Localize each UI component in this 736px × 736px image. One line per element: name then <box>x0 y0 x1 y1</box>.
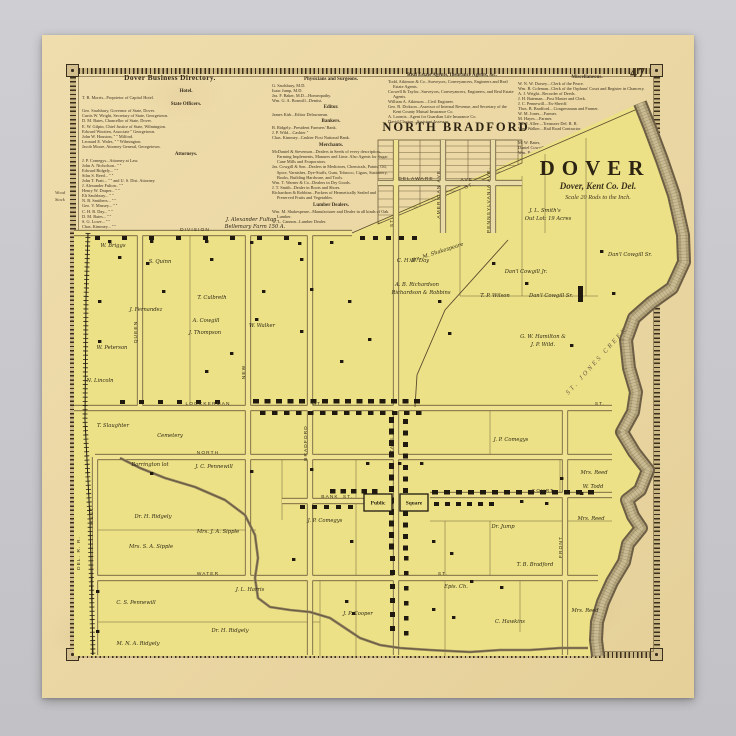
building <box>403 454 408 459</box>
building <box>468 490 474 495</box>
street-label: STATE <box>389 437 395 457</box>
house <box>500 586 503 589</box>
building <box>389 463 394 469</box>
building <box>403 442 408 447</box>
street-label: NEW <box>241 365 247 380</box>
owner-label: C. S. Pennewill <box>116 600 156 606</box>
page-number: 47 <box>630 66 646 82</box>
building <box>351 489 357 494</box>
house <box>366 462 369 465</box>
building <box>122 236 127 240</box>
building <box>403 431 408 436</box>
owner-label: Barrington lot <box>130 462 169 468</box>
building <box>404 586 409 591</box>
street-label: DEL. R. R. <box>76 536 82 570</box>
margin-note: Stock <box>55 197 65 202</box>
house <box>525 282 528 285</box>
building <box>404 411 410 415</box>
building <box>284 236 289 240</box>
building <box>445 502 450 506</box>
owner-label: Dan'l Cowgill Sr. <box>528 293 573 299</box>
owner-label: Dan'l Cowgill Jr. <box>504 269 548 275</box>
street-label: ST. <box>313 401 323 407</box>
house <box>300 258 303 261</box>
building <box>434 502 439 506</box>
owner-label: Bellemary Farm 150 A. <box>224 224 286 230</box>
house <box>545 502 548 505</box>
building <box>391 399 397 404</box>
street-label: COURT <box>532 488 554 494</box>
house <box>205 370 208 373</box>
building <box>257 236 262 240</box>
building <box>389 486 394 492</box>
house <box>118 256 121 259</box>
owner-label: S. Quinn <box>149 259 172 265</box>
house <box>150 240 153 243</box>
owner-label: J. Fernandez <box>129 307 163 313</box>
owner-label: T. Slaughter <box>97 423 129 429</box>
building <box>360 236 365 240</box>
street-label: ST. <box>343 494 353 500</box>
product-backdrop: Dover Business Directory. Hotel.T. B. Mo… <box>0 0 736 736</box>
public-square-label: Public <box>371 501 386 507</box>
owner-label: Mrs. Reed <box>570 608 599 614</box>
street-label: DIVISION <box>180 227 210 233</box>
street-label: DELAWARE <box>398 176 433 182</box>
owner-label: Mrs. J. A. Sipple <box>196 529 239 535</box>
building <box>588 490 594 495</box>
house <box>98 300 101 303</box>
owner-label: Richardson & Robbins <box>390 290 450 296</box>
building <box>390 598 395 603</box>
house <box>450 552 453 555</box>
building <box>158 400 163 404</box>
building <box>276 399 282 404</box>
owner-label: A. B. Richardson <box>394 282 439 288</box>
street-label: BRADFORD <box>303 425 309 461</box>
street-label: PENNSYLVANIA AVE. <box>486 167 492 233</box>
owner-label: J. C. Pennewill <box>194 464 233 470</box>
house <box>452 616 455 619</box>
owner-label: A. Cowgill <box>192 318 220 324</box>
building <box>177 400 182 404</box>
building <box>324 505 329 509</box>
owner-label: W. Peterson <box>97 345 128 351</box>
margin-note: Wood <box>55 190 65 195</box>
owner-label: J. P. Wild. <box>530 342 556 348</box>
owner-label: W. Todd <box>583 484 604 490</box>
building <box>403 546 408 551</box>
street-label: ST. <box>438 571 448 577</box>
building <box>312 505 317 509</box>
house <box>345 600 348 603</box>
building <box>380 399 386 404</box>
building <box>389 544 394 550</box>
building <box>320 411 326 415</box>
street-label: WATER <box>197 571 219 577</box>
house <box>250 470 253 473</box>
house <box>298 242 301 245</box>
owner-label: J. L. Smith's <box>528 208 561 214</box>
building <box>272 411 278 415</box>
house <box>398 462 401 465</box>
map-title: DOVER <box>500 156 690 181</box>
building <box>399 236 404 240</box>
building <box>392 411 398 415</box>
owner-label: C. H. B. Day <box>397 258 429 264</box>
house <box>98 340 101 343</box>
owner-label: J. Thompson <box>188 330 221 336</box>
owner-label: M. N. A. Ridgely <box>115 641 159 647</box>
building <box>390 584 395 589</box>
house <box>230 352 233 355</box>
street-label: ST. <box>389 217 395 227</box>
owner-label: Dan'l Cowgill Sr. <box>607 252 652 258</box>
building <box>372 489 378 494</box>
building <box>345 399 351 404</box>
public-square-label: Square <box>406 501 423 507</box>
house <box>438 300 441 303</box>
building <box>432 490 438 495</box>
building <box>564 490 570 495</box>
building <box>253 399 259 404</box>
building <box>308 411 314 415</box>
building <box>480 490 486 495</box>
house <box>368 338 371 341</box>
street-label: QUEEN <box>133 321 139 344</box>
building <box>95 236 100 240</box>
building <box>403 399 409 404</box>
house <box>255 318 258 321</box>
building <box>404 556 409 561</box>
building <box>456 502 461 506</box>
building <box>390 556 395 561</box>
house <box>560 477 563 480</box>
building <box>336 505 341 509</box>
building <box>389 417 394 423</box>
owner-label: N. Lincoln <box>86 378 114 384</box>
building <box>380 411 386 415</box>
house <box>250 241 253 244</box>
district-title: NORTH BRADFORD <box>370 120 542 135</box>
house <box>432 540 435 543</box>
house <box>580 492 583 495</box>
building <box>467 502 472 506</box>
building <box>478 502 483 506</box>
owner-label: Out Lot: 19 Acres <box>525 216 572 222</box>
building <box>373 236 378 240</box>
house <box>470 580 473 583</box>
building <box>416 411 422 415</box>
building <box>404 631 409 636</box>
building <box>489 502 494 506</box>
building <box>176 236 181 240</box>
owner-label: Epis. Ch. <box>443 584 468 590</box>
house <box>205 240 208 243</box>
building <box>444 490 450 495</box>
building <box>368 399 374 404</box>
building <box>284 411 290 415</box>
street-label: NORTH <box>197 450 219 456</box>
house <box>96 630 99 633</box>
building <box>230 236 235 240</box>
house <box>96 590 99 593</box>
street-label: LOOCKERMAN <box>185 401 230 407</box>
house <box>310 288 313 291</box>
building <box>386 236 391 240</box>
building <box>403 419 408 424</box>
house <box>432 608 435 611</box>
building <box>403 534 408 539</box>
building <box>120 400 125 404</box>
building <box>348 505 353 509</box>
building <box>299 399 305 404</box>
house <box>600 250 603 253</box>
owner-label: Dr. H. Ridgely <box>133 514 171 520</box>
owner-label: Dr. H. Ridgely <box>210 628 248 634</box>
map-scale-note: Scale 20 Rods to the Inch. <box>508 194 688 201</box>
dover-town-map: PublicSquareDIVISIONST.LOOCKERMANST.ST.N… <box>0 0 736 736</box>
owner-label: W. Walker <box>249 323 276 329</box>
building <box>334 399 340 404</box>
street-label: ST. <box>595 401 605 407</box>
street-label: AMERICAN AVE. <box>436 167 442 218</box>
owner-label: Mrs. S. A. Sipple <box>128 544 173 550</box>
building <box>296 411 302 415</box>
building <box>356 411 362 415</box>
owner-label: T. P. Wilson <box>480 293 509 299</box>
building <box>389 429 394 435</box>
house <box>210 258 213 261</box>
building <box>403 511 408 516</box>
building <box>288 399 294 404</box>
building <box>139 400 144 404</box>
owner-label: J. P. Cooper <box>342 611 373 617</box>
building <box>300 505 305 509</box>
building <box>403 477 408 482</box>
building <box>389 521 394 527</box>
building <box>404 616 409 621</box>
house <box>340 360 343 363</box>
building <box>403 488 408 493</box>
building <box>404 571 409 576</box>
building <box>516 490 522 495</box>
owner-label: Cemetery <box>157 433 183 439</box>
building <box>504 490 510 495</box>
street-label: BANK <box>321 494 338 500</box>
owner-label: C. Hawkins <box>495 619 525 625</box>
building <box>403 465 408 470</box>
house <box>448 332 451 335</box>
owner-label: Mrs. Reed <box>579 470 608 476</box>
house <box>310 468 313 471</box>
building <box>412 236 417 240</box>
street-label: FRONT <box>558 536 564 558</box>
house <box>300 330 303 333</box>
building <box>456 490 462 495</box>
owner-label: T. B. Bradford <box>517 562 554 568</box>
owner-label: Dr. Jump <box>490 524 515 530</box>
owner-label: Mrs. Reed <box>576 516 605 522</box>
house <box>420 462 423 465</box>
owner-label: G. W. Hamilton & <box>520 334 566 340</box>
owner-label: J. Alexander Fulton. <box>225 217 278 223</box>
house <box>612 292 615 295</box>
building <box>390 612 395 617</box>
street-label: WEST <box>89 507 95 525</box>
house <box>150 472 153 475</box>
house <box>520 500 523 503</box>
owner-label: W. Briggs <box>101 243 126 249</box>
building <box>389 475 394 481</box>
building <box>390 626 395 631</box>
house <box>492 262 495 265</box>
building <box>390 570 395 575</box>
building <box>341 489 347 494</box>
building <box>260 411 266 415</box>
owner-label: J. P. Comegys <box>307 518 343 524</box>
building <box>578 286 583 302</box>
street-label: AVE. <box>461 177 476 183</box>
house <box>570 344 573 347</box>
building <box>404 601 409 606</box>
building <box>149 236 154 240</box>
map-subtitle: Dover, Kent Co. Del. <box>508 181 688 191</box>
building <box>344 411 350 415</box>
building <box>389 532 394 538</box>
building <box>492 490 498 495</box>
house <box>348 300 351 303</box>
building <box>362 489 368 494</box>
house <box>162 290 165 293</box>
building <box>330 489 336 494</box>
house <box>350 540 353 543</box>
owner-label: J. L. Harris <box>235 587 265 593</box>
house <box>330 241 333 244</box>
building <box>265 399 271 404</box>
owner-label: J. P. Comegys <box>493 437 529 443</box>
owner-label: T. Culbreth <box>197 295 226 301</box>
building <box>203 236 208 240</box>
building <box>357 399 363 404</box>
house <box>262 290 265 293</box>
building <box>414 399 420 404</box>
building <box>332 411 338 415</box>
building <box>403 523 408 528</box>
house <box>292 558 295 561</box>
building <box>368 411 374 415</box>
